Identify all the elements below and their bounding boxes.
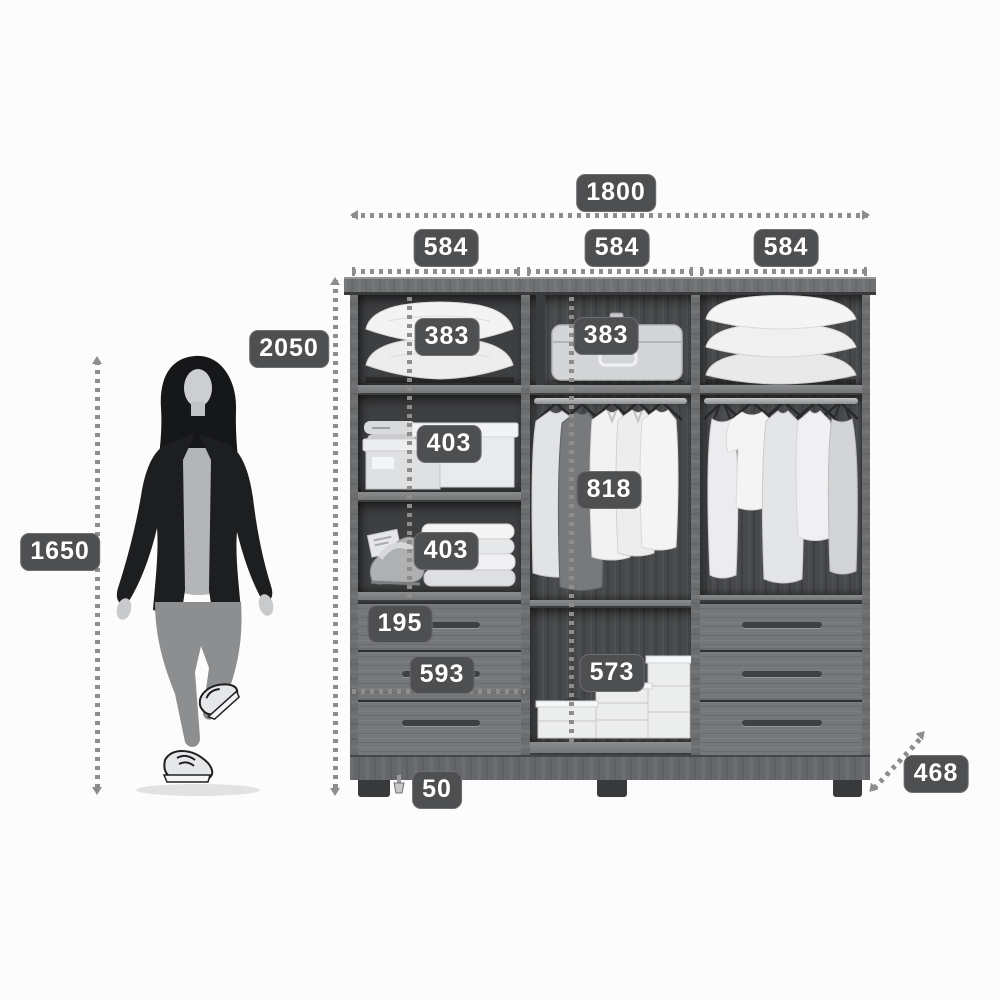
dim-line-person-height: [95, 361, 100, 789]
drawer-handle: [742, 622, 822, 628]
hanging-rod-right: [704, 398, 858, 404]
right-side-panel: [862, 295, 870, 757]
dim-guide-left-column: [407, 297, 412, 598]
partition-left: [521, 295, 530, 757]
hanging-clothes-right: [700, 395, 862, 595]
leveler-foot: [392, 775, 406, 795]
shelf-left-3: [358, 592, 521, 602]
hanging-rod-middle: [534, 398, 687, 404]
drawer-handle: [742, 720, 822, 726]
dim-label-shoe-compartment: 573: [580, 654, 645, 692]
dim-label-total-width: 1800: [576, 174, 656, 212]
shelf-middle-1: [530, 385, 691, 395]
drawer-handle: [402, 720, 480, 726]
left-side-panel: [350, 295, 358, 757]
dim-label-lower-shelf: 403: [414, 532, 479, 570]
arrow-icon: [862, 210, 870, 220]
dim-label-top-drawer: 195: [368, 605, 433, 643]
dim-label-section-right: 584: [754, 229, 819, 267]
shelf-middle-2: [530, 600, 691, 608]
drawer-left-3: [358, 700, 521, 755]
dim-label-foot-height: 50: [412, 771, 462, 809]
dim-label-middle-shelf: 403: [417, 425, 482, 463]
arrow-icon: [350, 210, 358, 220]
wardrobe-dimensions-diagram: 1800 584 584 584 2050 1650 383 383 403 4…: [0, 0, 1000, 1000]
shelf-right-1: [700, 385, 862, 395]
dim-label-top-shelf-middle: 383: [574, 317, 639, 355]
dim-label-hanging-space: 818: [577, 471, 642, 509]
arrow-icon: [330, 277, 340, 285]
person-silhouette: [103, 346, 283, 798]
partition-right: [691, 295, 700, 757]
dim-line-section-middle: [527, 269, 693, 274]
dim-line-total-width: [352, 213, 868, 218]
dim-label-total-height: 2050: [249, 330, 329, 368]
dim-label-drawer-width: 593: [410, 656, 475, 694]
wardrobe-top-panel: [344, 277, 876, 295]
dim-line-section-left: [352, 269, 520, 274]
person-shadow: [136, 784, 260, 796]
arrow-icon: [92, 787, 102, 795]
dim-label-depth: 468: [904, 755, 969, 793]
dim-label-section-middle: 584: [585, 229, 650, 267]
shelf-left-2: [358, 492, 521, 502]
dim-guide-middle-column: [569, 297, 574, 742]
wardrobe-foot: [358, 780, 390, 797]
dim-line-total-height: [333, 280, 338, 790]
dim-label-section-left: 584: [414, 229, 479, 267]
arrow-icon: [330, 788, 340, 796]
dim-label-person-height: 1650: [20, 533, 100, 571]
wardrobe-foot: [597, 780, 627, 797]
shelf-left-1: [358, 385, 521, 395]
wardrobe-foot: [833, 780, 862, 797]
arrow-icon: [92, 356, 102, 364]
dim-line-section-right: [700, 269, 867, 274]
shelf-middle-3: [530, 742, 691, 755]
drawer-right-3: [700, 700, 862, 755]
dim-label-top-shelf-left: 383: [415, 318, 480, 356]
shelf-right-2: [700, 595, 862, 602]
drawer-handle: [742, 671, 822, 677]
pillow-stack-right: [700, 295, 862, 385]
